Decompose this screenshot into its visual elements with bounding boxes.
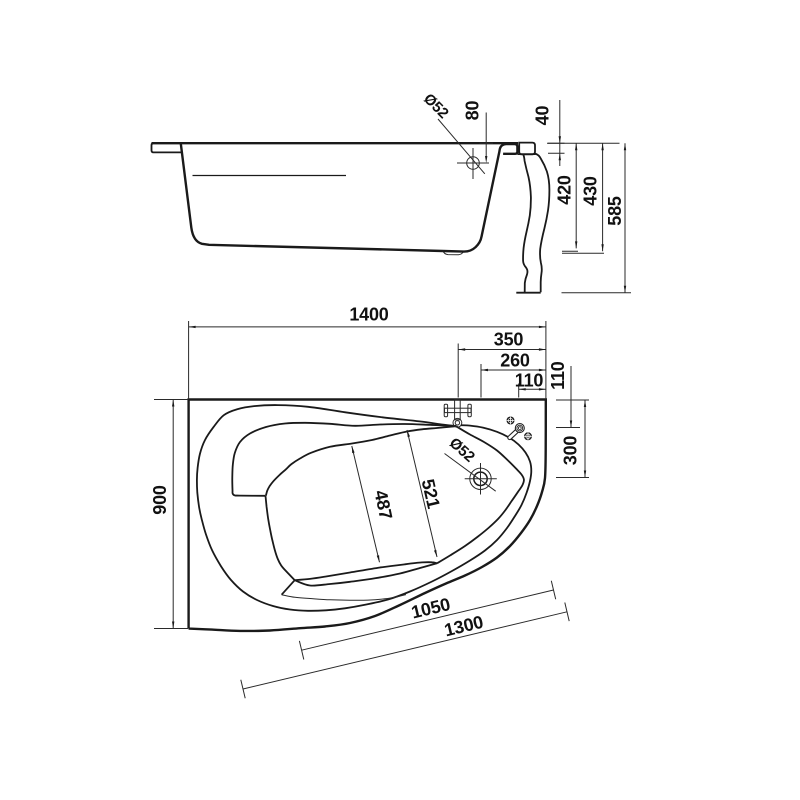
- svg-text:900: 900: [150, 485, 170, 515]
- svg-text:430: 430: [580, 176, 600, 206]
- svg-text:80: 80: [462, 101, 482, 121]
- svg-text:350: 350: [494, 330, 524, 350]
- svg-text:260: 260: [500, 351, 530, 371]
- svg-text:110: 110: [548, 361, 568, 390]
- svg-text:420: 420: [554, 175, 574, 205]
- svg-text:585: 585: [605, 196, 625, 226]
- svg-text:40: 40: [533, 106, 553, 126]
- svg-text:110: 110: [515, 371, 544, 391]
- svg-text:300: 300: [560, 436, 580, 466]
- svg-text:1400: 1400: [349, 305, 388, 325]
